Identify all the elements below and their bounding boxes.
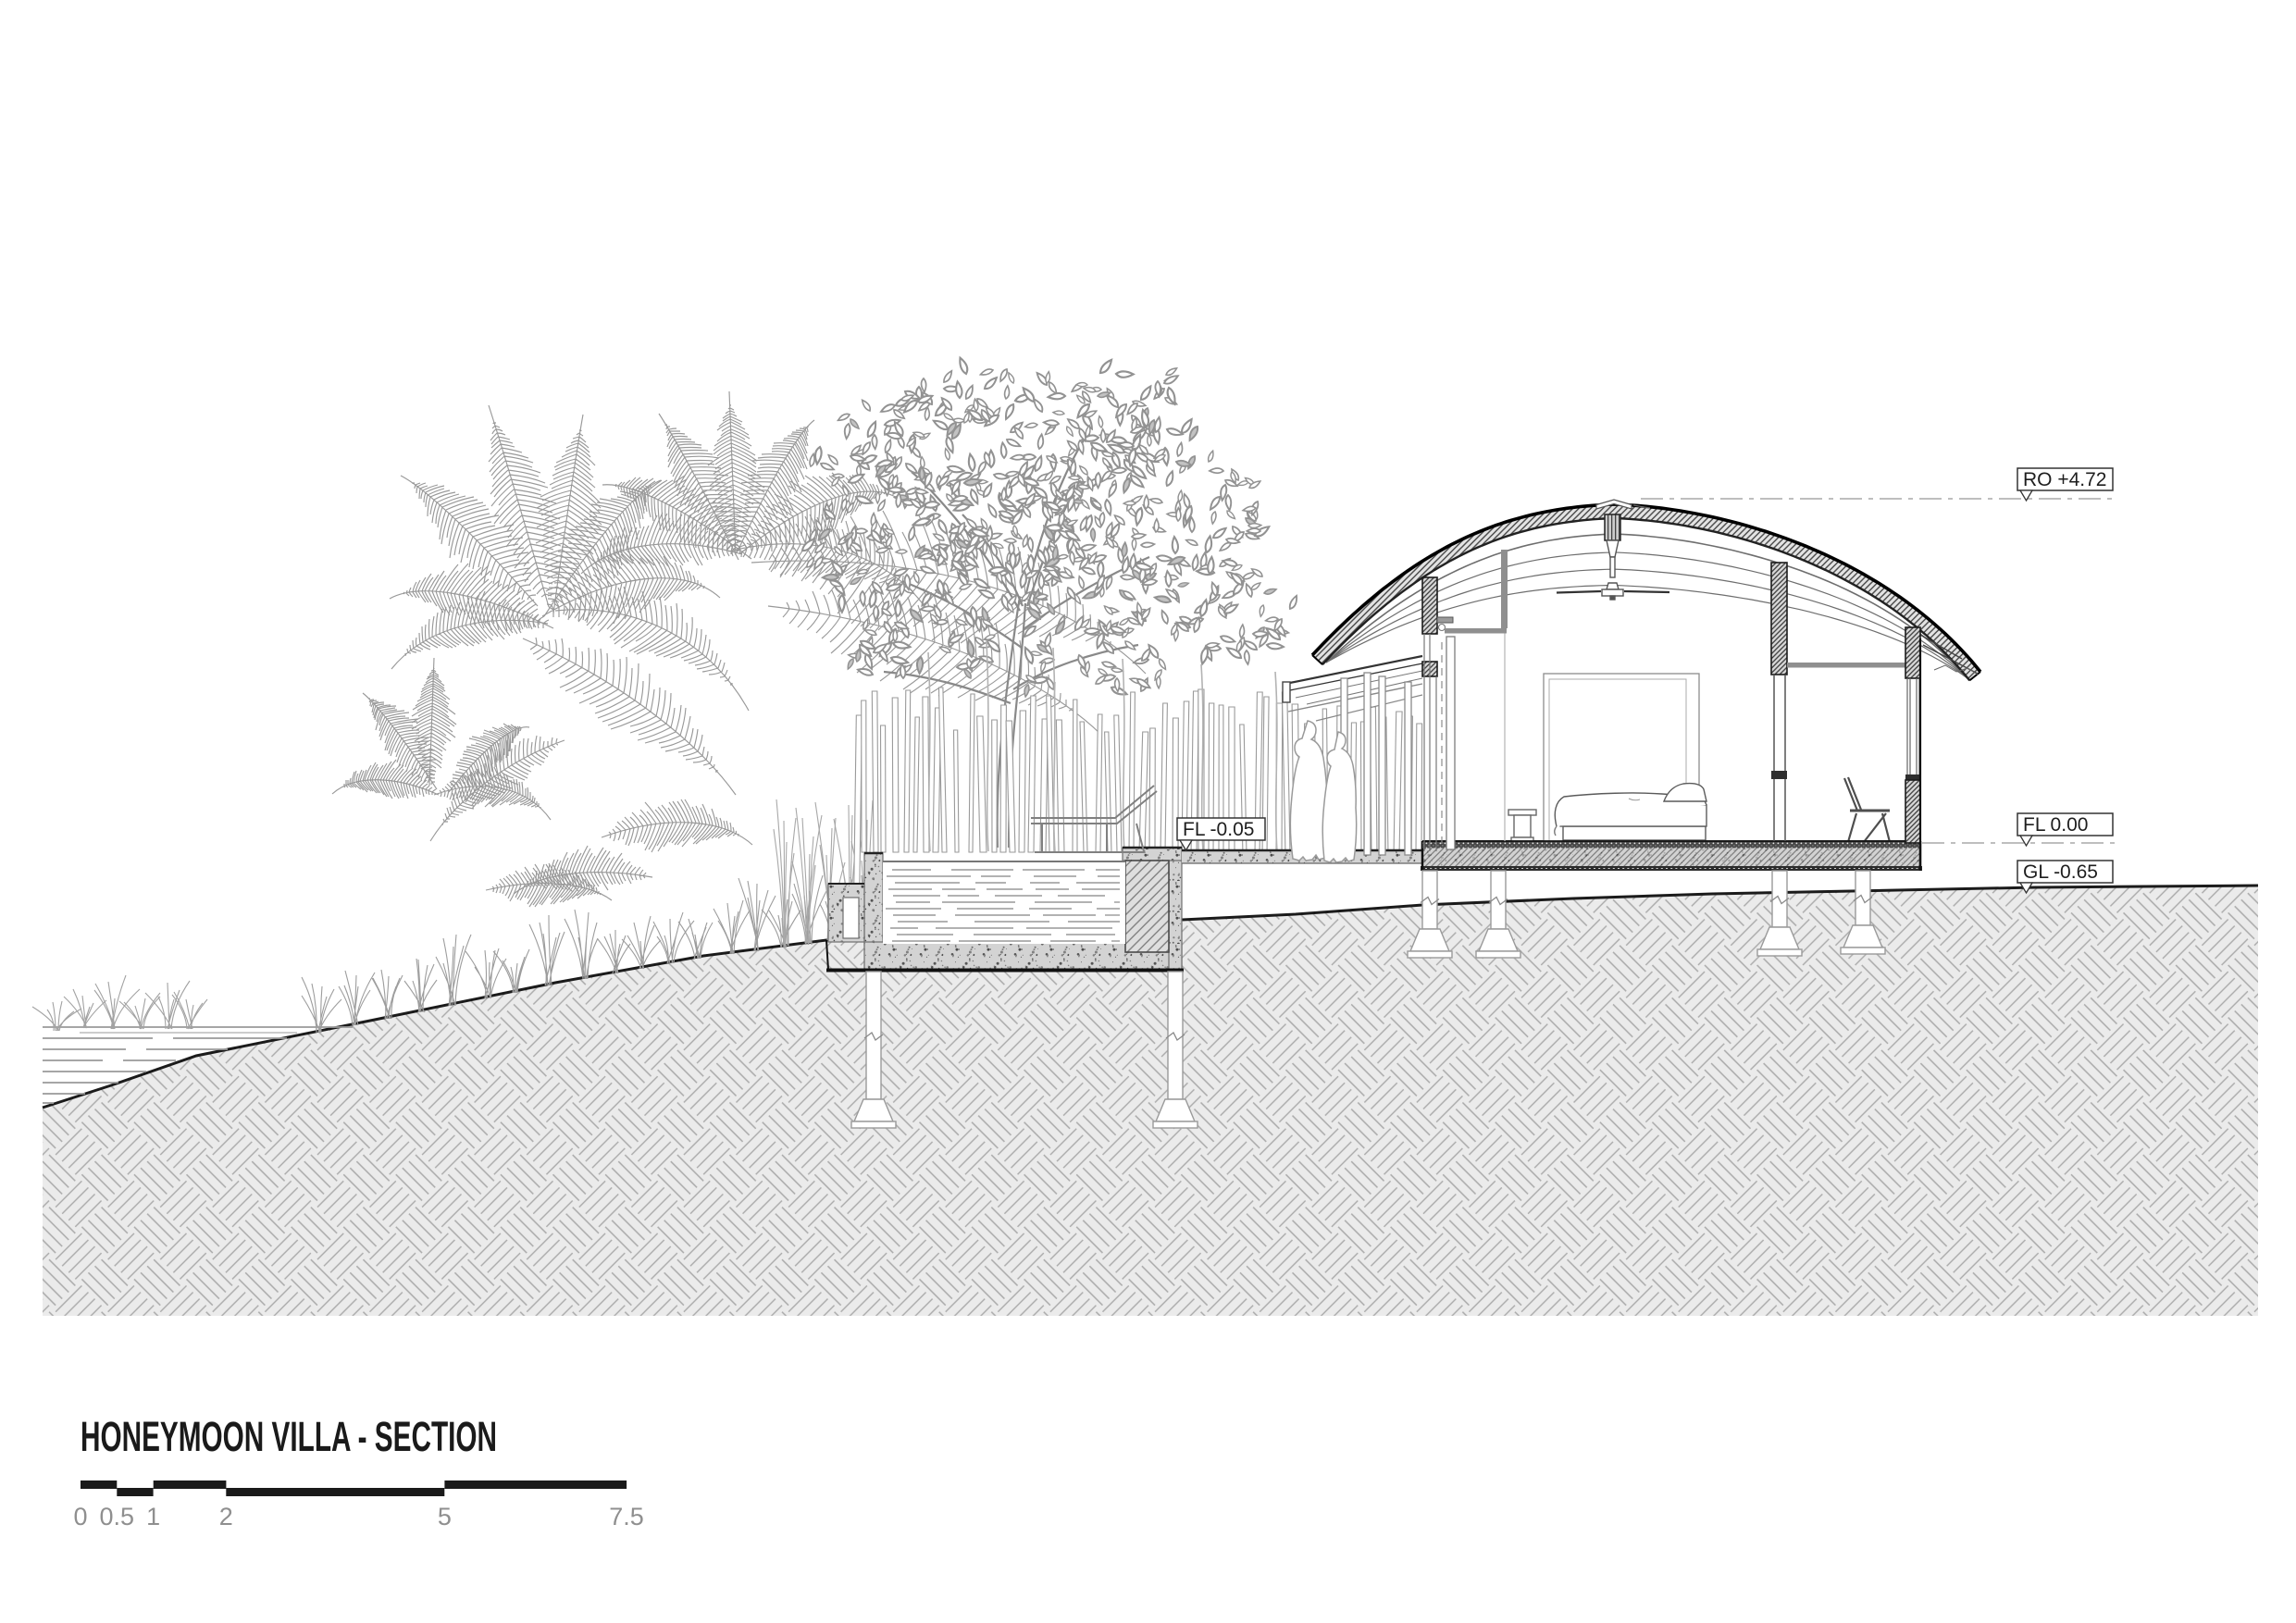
svg-text:2: 2 xyxy=(219,1503,233,1530)
svg-text:1: 1 xyxy=(146,1503,160,1530)
svg-text:7.5: 7.5 xyxy=(609,1503,644,1530)
svg-text:0.5: 0.5 xyxy=(100,1503,135,1530)
svg-text:0: 0 xyxy=(73,1503,87,1530)
svg-text:5: 5 xyxy=(438,1503,452,1530)
svg-text:FL 0.00: FL 0.00 xyxy=(2023,814,2088,836)
svg-text:HONEYMOON VILLA - SECTION: HONEYMOON VILLA - SECTION xyxy=(81,1413,497,1460)
svg-text:FL -0.05: FL -0.05 xyxy=(1183,819,1254,840)
svg-text:RO +4.72: RO +4.72 xyxy=(2023,469,2106,490)
svg-text:GL -0.65: GL -0.65 xyxy=(2023,861,2098,883)
